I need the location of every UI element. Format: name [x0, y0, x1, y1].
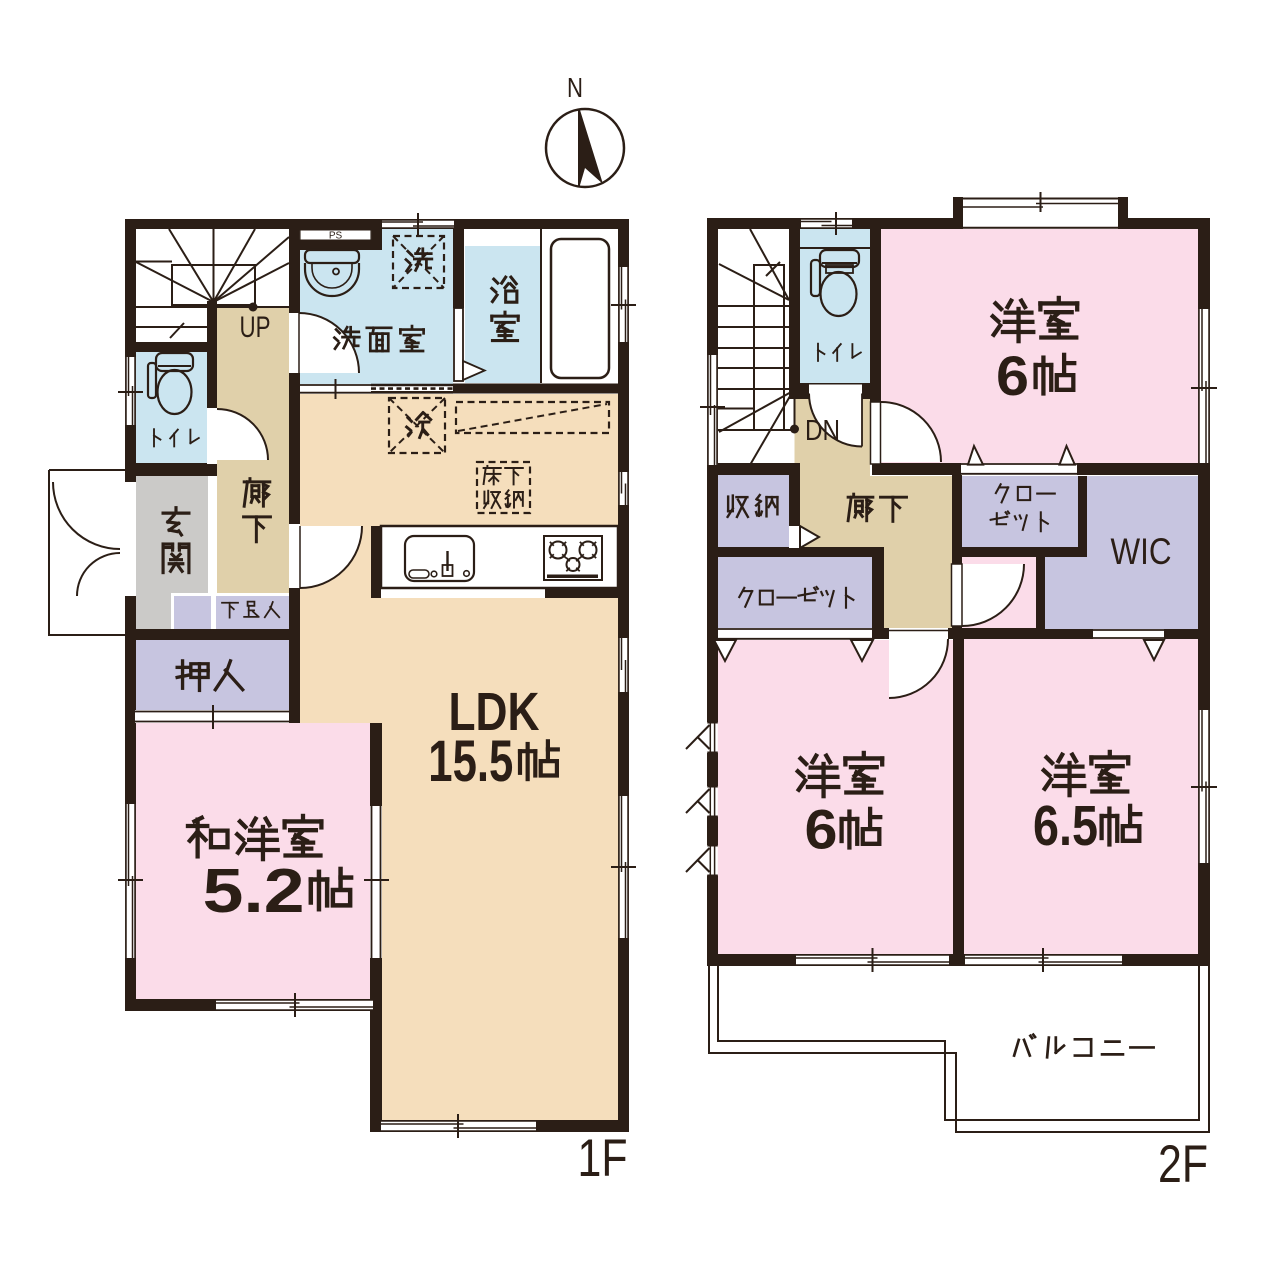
- svg-text:5.2: 5.2: [203, 857, 305, 926]
- svg-text:DN: DN: [805, 415, 840, 447]
- svg-text:UP: UP: [240, 311, 271, 344]
- svg-text:PS: PS: [329, 231, 343, 242]
- svg-text:WIC: WIC: [1111, 531, 1172, 572]
- svg-text:2F: 2F: [1158, 1135, 1208, 1194]
- svg-text:15.5: 15.5: [428, 729, 513, 794]
- svg-text:6: 6: [805, 798, 838, 861]
- svg-text:1F: 1F: [578, 1129, 628, 1188]
- svg-text:6.5: 6.5: [1033, 794, 1098, 858]
- svg-text:6: 6: [996, 344, 1029, 407]
- svg-text:N: N: [567, 72, 583, 103]
